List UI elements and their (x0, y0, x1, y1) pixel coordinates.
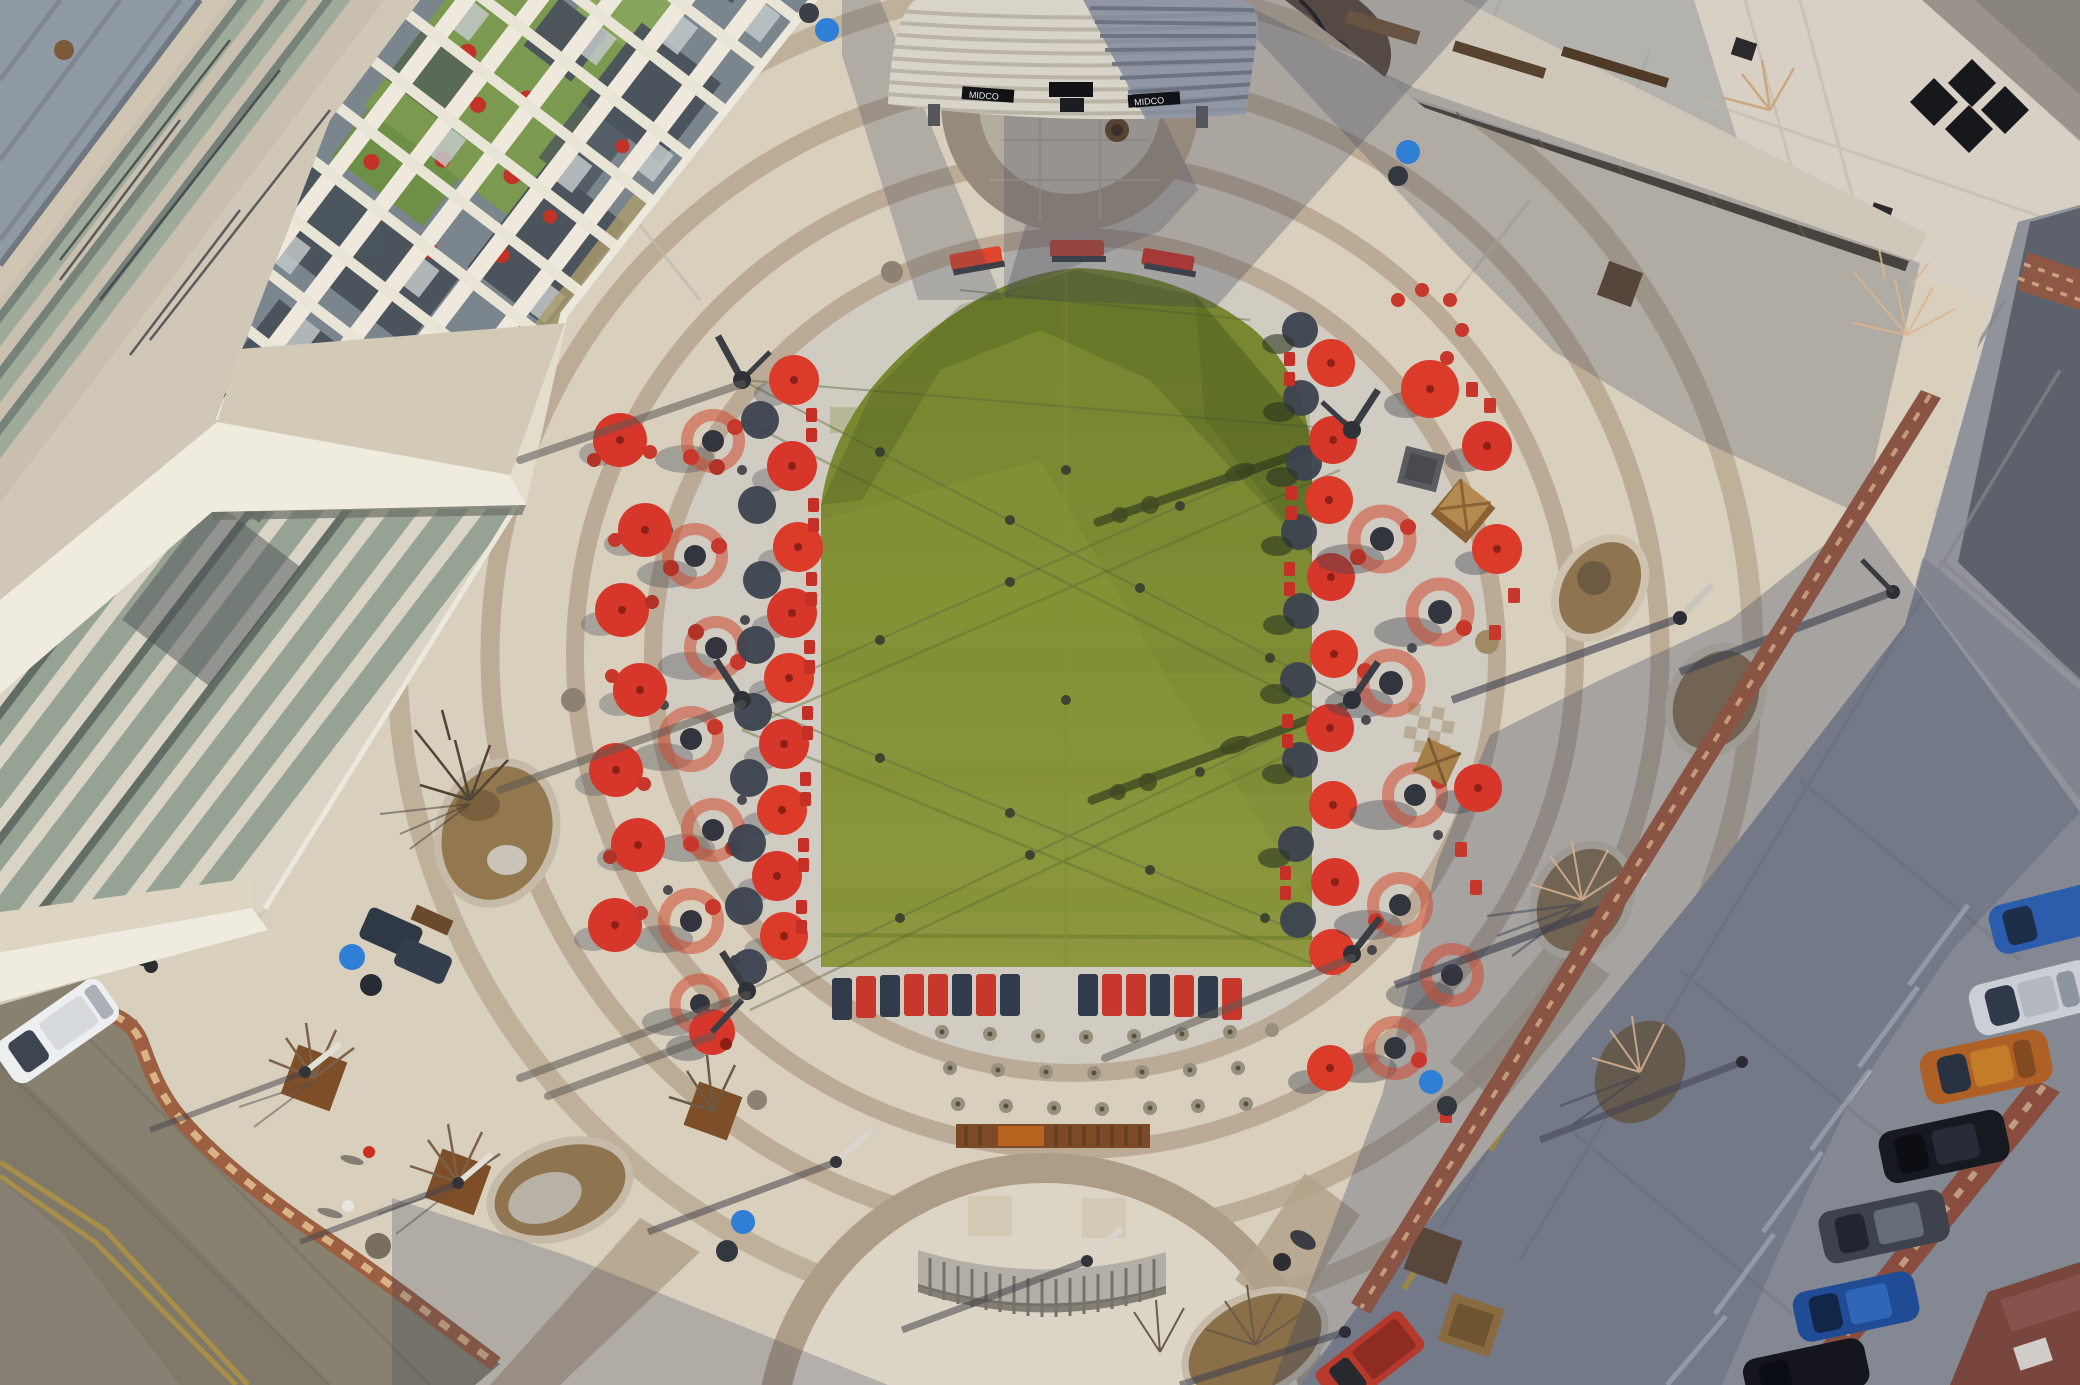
svg-text:MIDCO: MIDCO (1134, 95, 1165, 107)
svg-text:MIDCO: MIDCO (969, 90, 1000, 102)
